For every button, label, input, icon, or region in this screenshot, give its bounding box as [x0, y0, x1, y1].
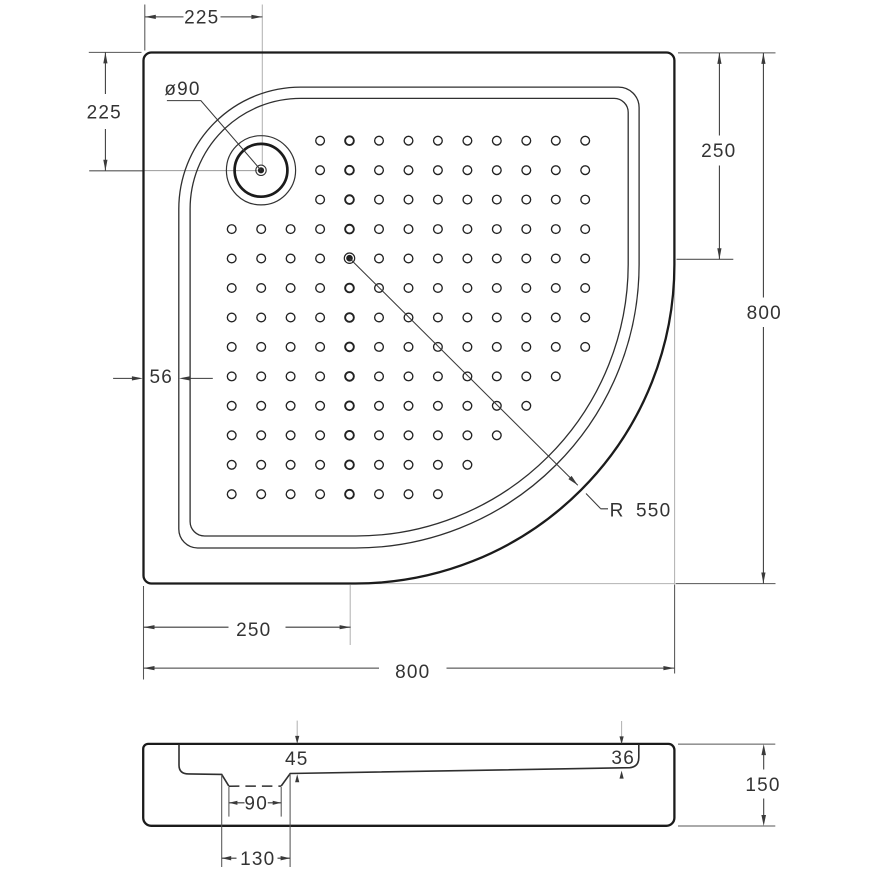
- svg-text:225: 225: [87, 102, 122, 123]
- svg-text:225: 225: [184, 7, 219, 28]
- svg-text:130: 130: [240, 849, 275, 870]
- svg-text:150: 150: [745, 775, 780, 796]
- svg-text:250: 250: [236, 620, 271, 641]
- svg-text:36: 36: [611, 748, 635, 769]
- svg-text:45: 45: [285, 749, 309, 770]
- svg-text:250: 250: [701, 141, 736, 162]
- svg-text:R 550: R 550: [610, 500, 672, 521]
- svg-text:ø90: ø90: [164, 79, 200, 100]
- svg-text:90: 90: [244, 794, 268, 815]
- svg-text:800: 800: [395, 662, 430, 683]
- svg-text:56: 56: [150, 367, 174, 388]
- svg-text:800: 800: [747, 303, 782, 324]
